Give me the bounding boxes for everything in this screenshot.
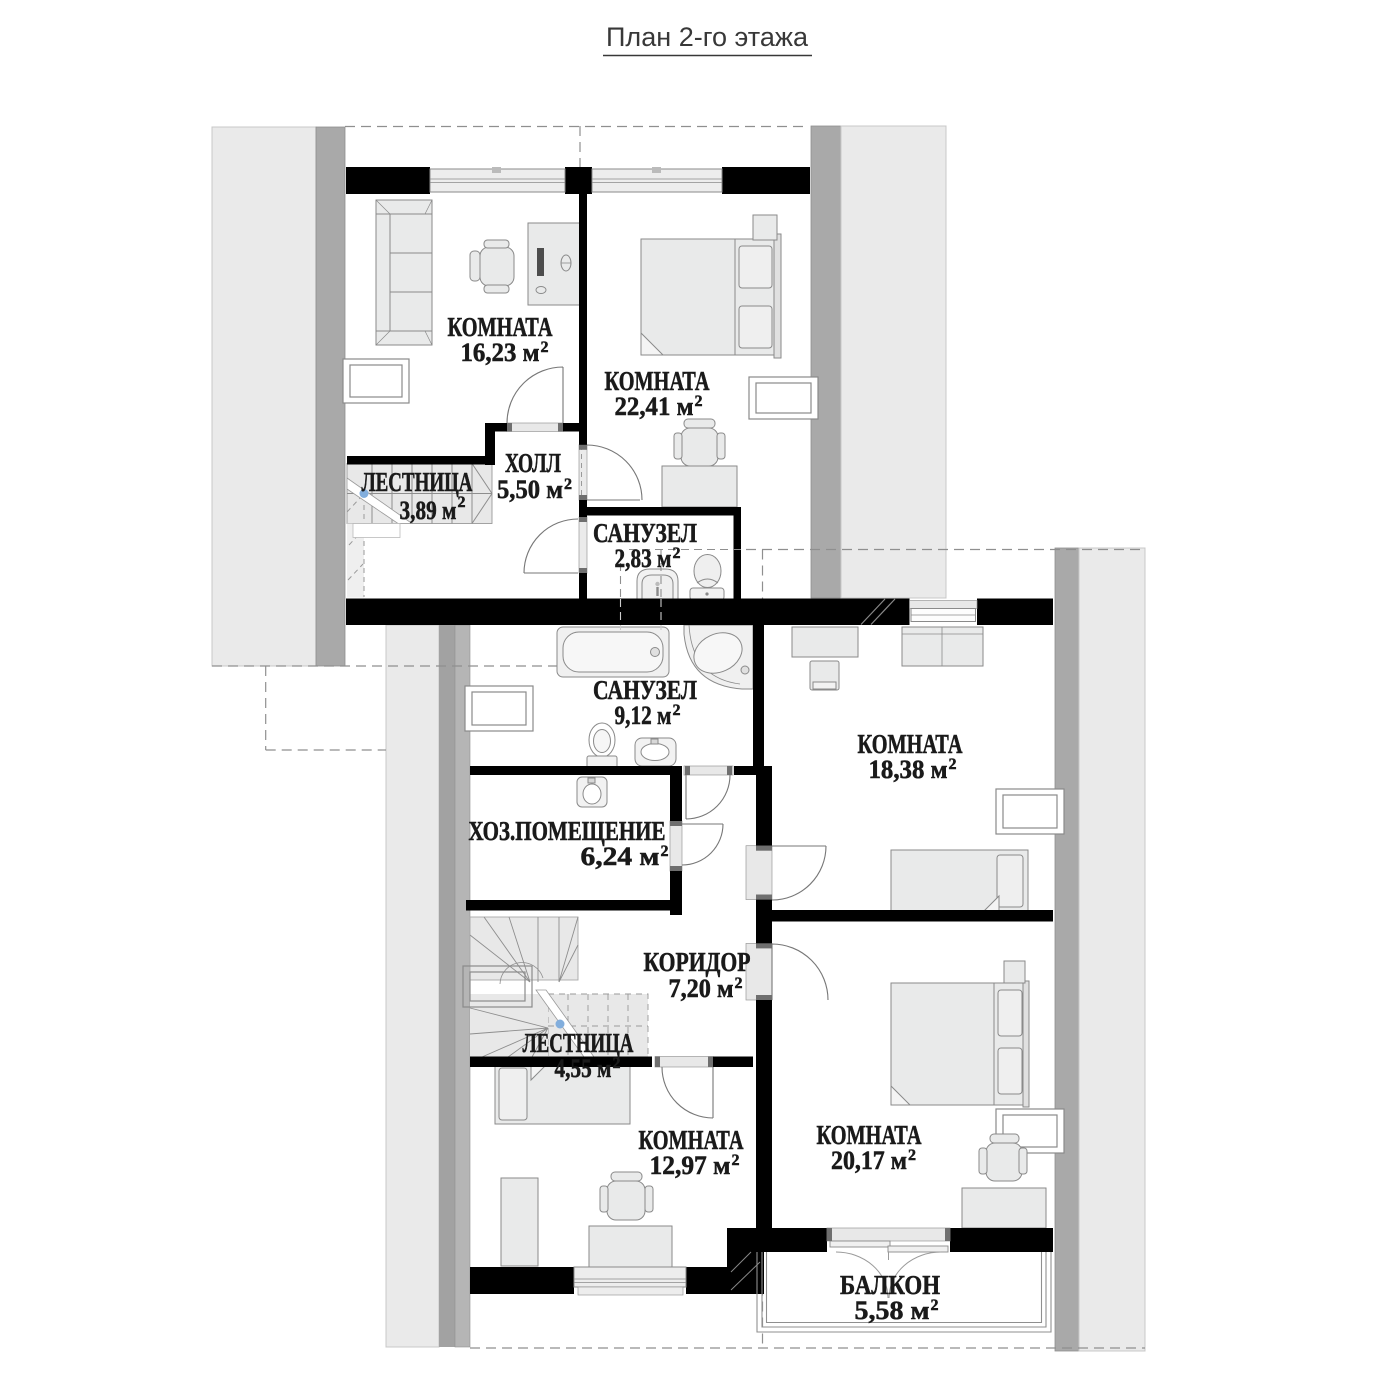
svg-text:5,58 м: 5,58 м — [855, 1296, 930, 1325]
svg-text:2: 2 — [564, 476, 572, 493]
svg-text:6,24 м: 6,24 м — [581, 842, 660, 871]
svg-text:22,41 м: 22,41 м — [615, 392, 694, 421]
svg-text:2: 2 — [931, 1297, 939, 1314]
svg-text:16,23 м: 16,23 м — [461, 338, 540, 367]
svg-text:9,12 м: 9,12 м — [615, 701, 672, 730]
svg-text:ХОЛЛ: ХОЛЛ — [505, 448, 561, 478]
svg-text:План 2-го этажа: План 2-го этажа — [606, 22, 809, 52]
svg-text:2: 2 — [673, 545, 681, 562]
svg-text:2: 2 — [732, 1152, 740, 1169]
svg-text:5,50 м: 5,50 м — [497, 475, 563, 504]
svg-text:4,55 м: 4,55 м — [555, 1054, 612, 1083]
svg-text:2: 2 — [458, 494, 466, 511]
svg-text:КОРИДОР: КОРИДОР — [644, 947, 751, 977]
svg-text:ЛЕСТНИЦА: ЛЕСТНИЦА — [362, 467, 473, 497]
svg-text:20,17 м: 20,17 м — [831, 1146, 907, 1175]
svg-text:2: 2 — [908, 1147, 916, 1164]
svg-text:2: 2 — [613, 1055, 621, 1072]
svg-text:2: 2 — [949, 756, 957, 773]
svg-text:2: 2 — [735, 975, 743, 992]
svg-text:2: 2 — [541, 339, 549, 356]
svg-text:3,89 м: 3,89 м — [400, 496, 457, 525]
svg-text:18,38 м: 18,38 м — [869, 755, 948, 784]
svg-text:2: 2 — [695, 393, 703, 410]
svg-text:7,20 м: 7,20 м — [669, 974, 734, 1003]
svg-text:2,83 м: 2,83 м — [615, 544, 672, 573]
svg-text:2: 2 — [661, 843, 669, 860]
svg-text:12,97 м: 12,97 м — [650, 1151, 731, 1180]
svg-text:2: 2 — [673, 702, 681, 719]
